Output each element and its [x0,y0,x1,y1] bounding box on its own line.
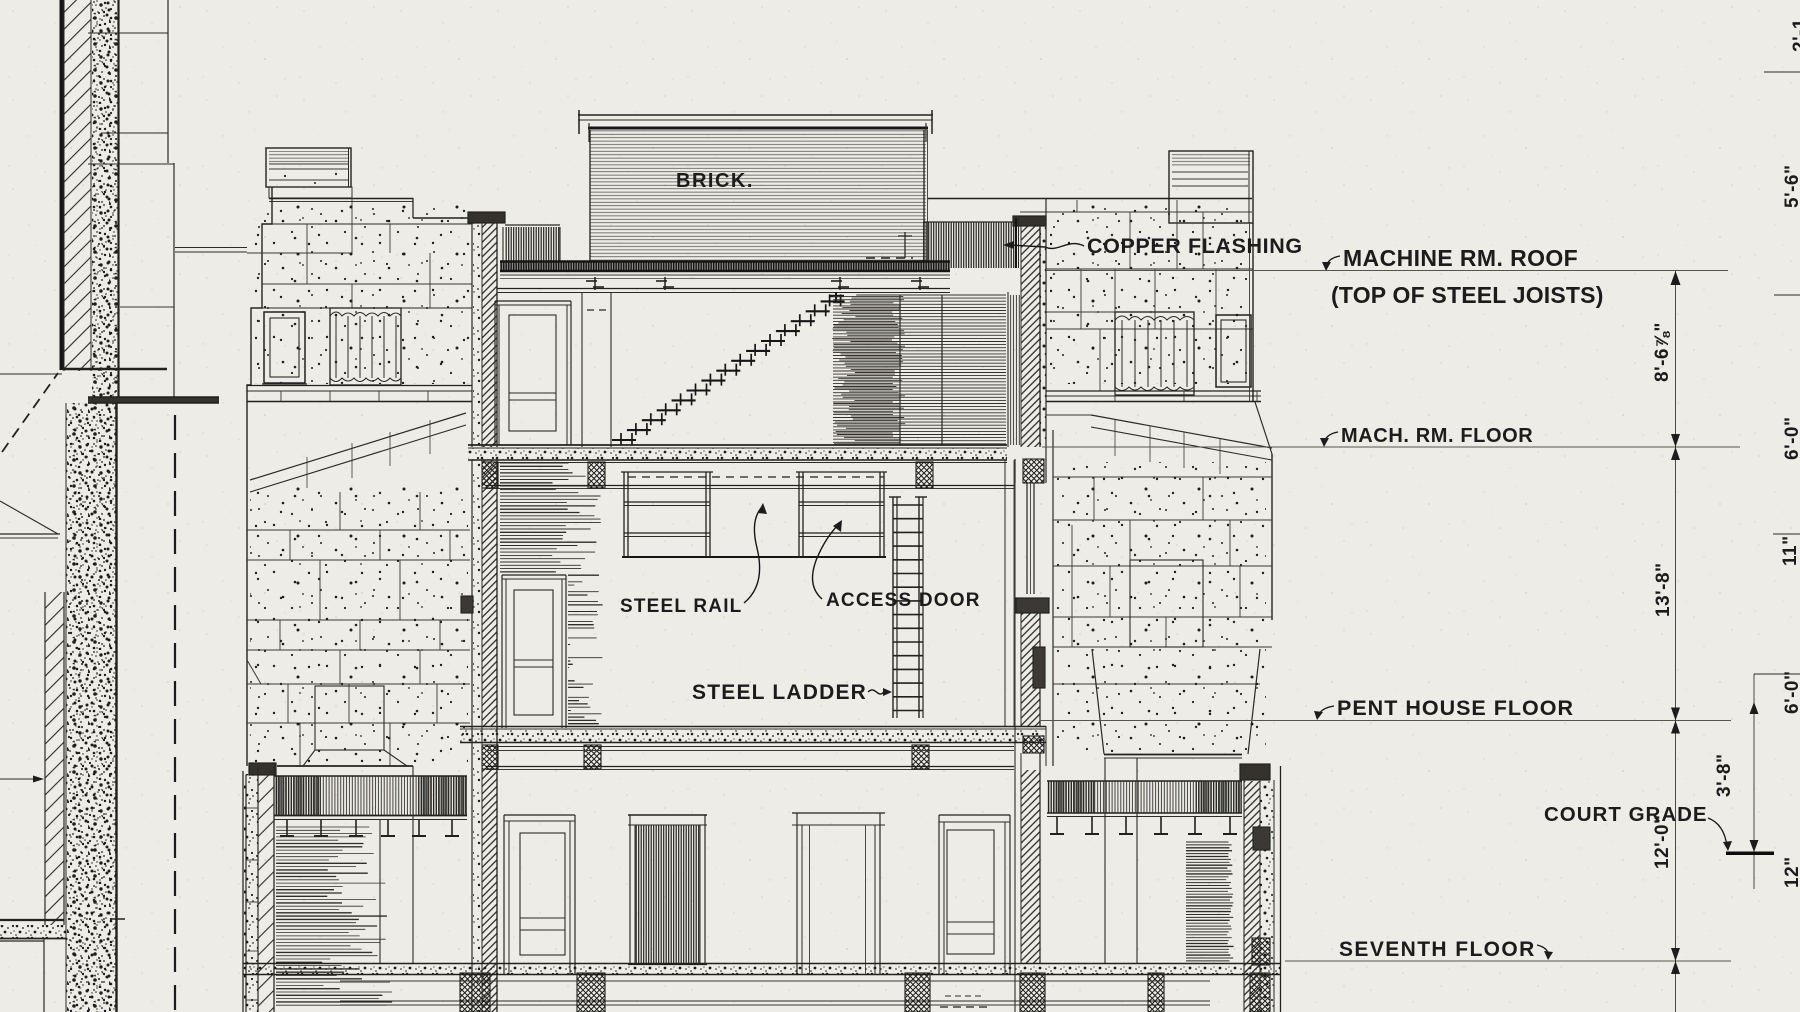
svg-text:STEEL LADDER: STEEL LADDER [692,681,867,704]
svg-text:12'-0": 12'-0" [1652,814,1673,869]
svg-text:6'-0": 6'-0" [1782,671,1800,715]
svg-text:COURT GRADE: COURT GRADE [1544,803,1708,826]
svg-text:(TOP OF STEEL JOISTS): (TOP OF STEEL JOISTS) [1331,282,1604,308]
svg-text:12": 12" [1782,856,1800,888]
svg-text:COPPER FLASHING: COPPER FLASHING [1087,234,1303,258]
svg-text:13'-8": 13'-8" [1653,562,1674,617]
svg-text:6'-0": 6'-0" [1782,417,1800,461]
svg-text:3'-8": 3'-8" [1714,754,1735,798]
svg-text:ACCESS DOOR: ACCESS DOOR [826,590,981,611]
svg-text:11": 11" [1780,535,1800,566]
svg-text:MACH. RM. FLOOR: MACH. RM. FLOOR [1341,425,1533,447]
svg-text:STEEL RAIL: STEEL RAIL [620,596,743,617]
svg-text:PENT HOUSE FLOOR: PENT HOUSE FLOOR [1337,696,1574,720]
svg-text:8'-6⅞": 8'-6⅞" [1652,322,1673,382]
svg-text:MACHINE RM. ROOF: MACHINE RM. ROOF [1343,245,1578,271]
svg-text:SEVENTH FLOOR: SEVENTH FLOOR [1339,938,1536,961]
svg-text:5'-6": 5'-6" [1782,165,1800,209]
svg-text:2'-1: 2'-1 [1790,18,1800,52]
svg-text:BRICK.: BRICK. [676,170,754,192]
